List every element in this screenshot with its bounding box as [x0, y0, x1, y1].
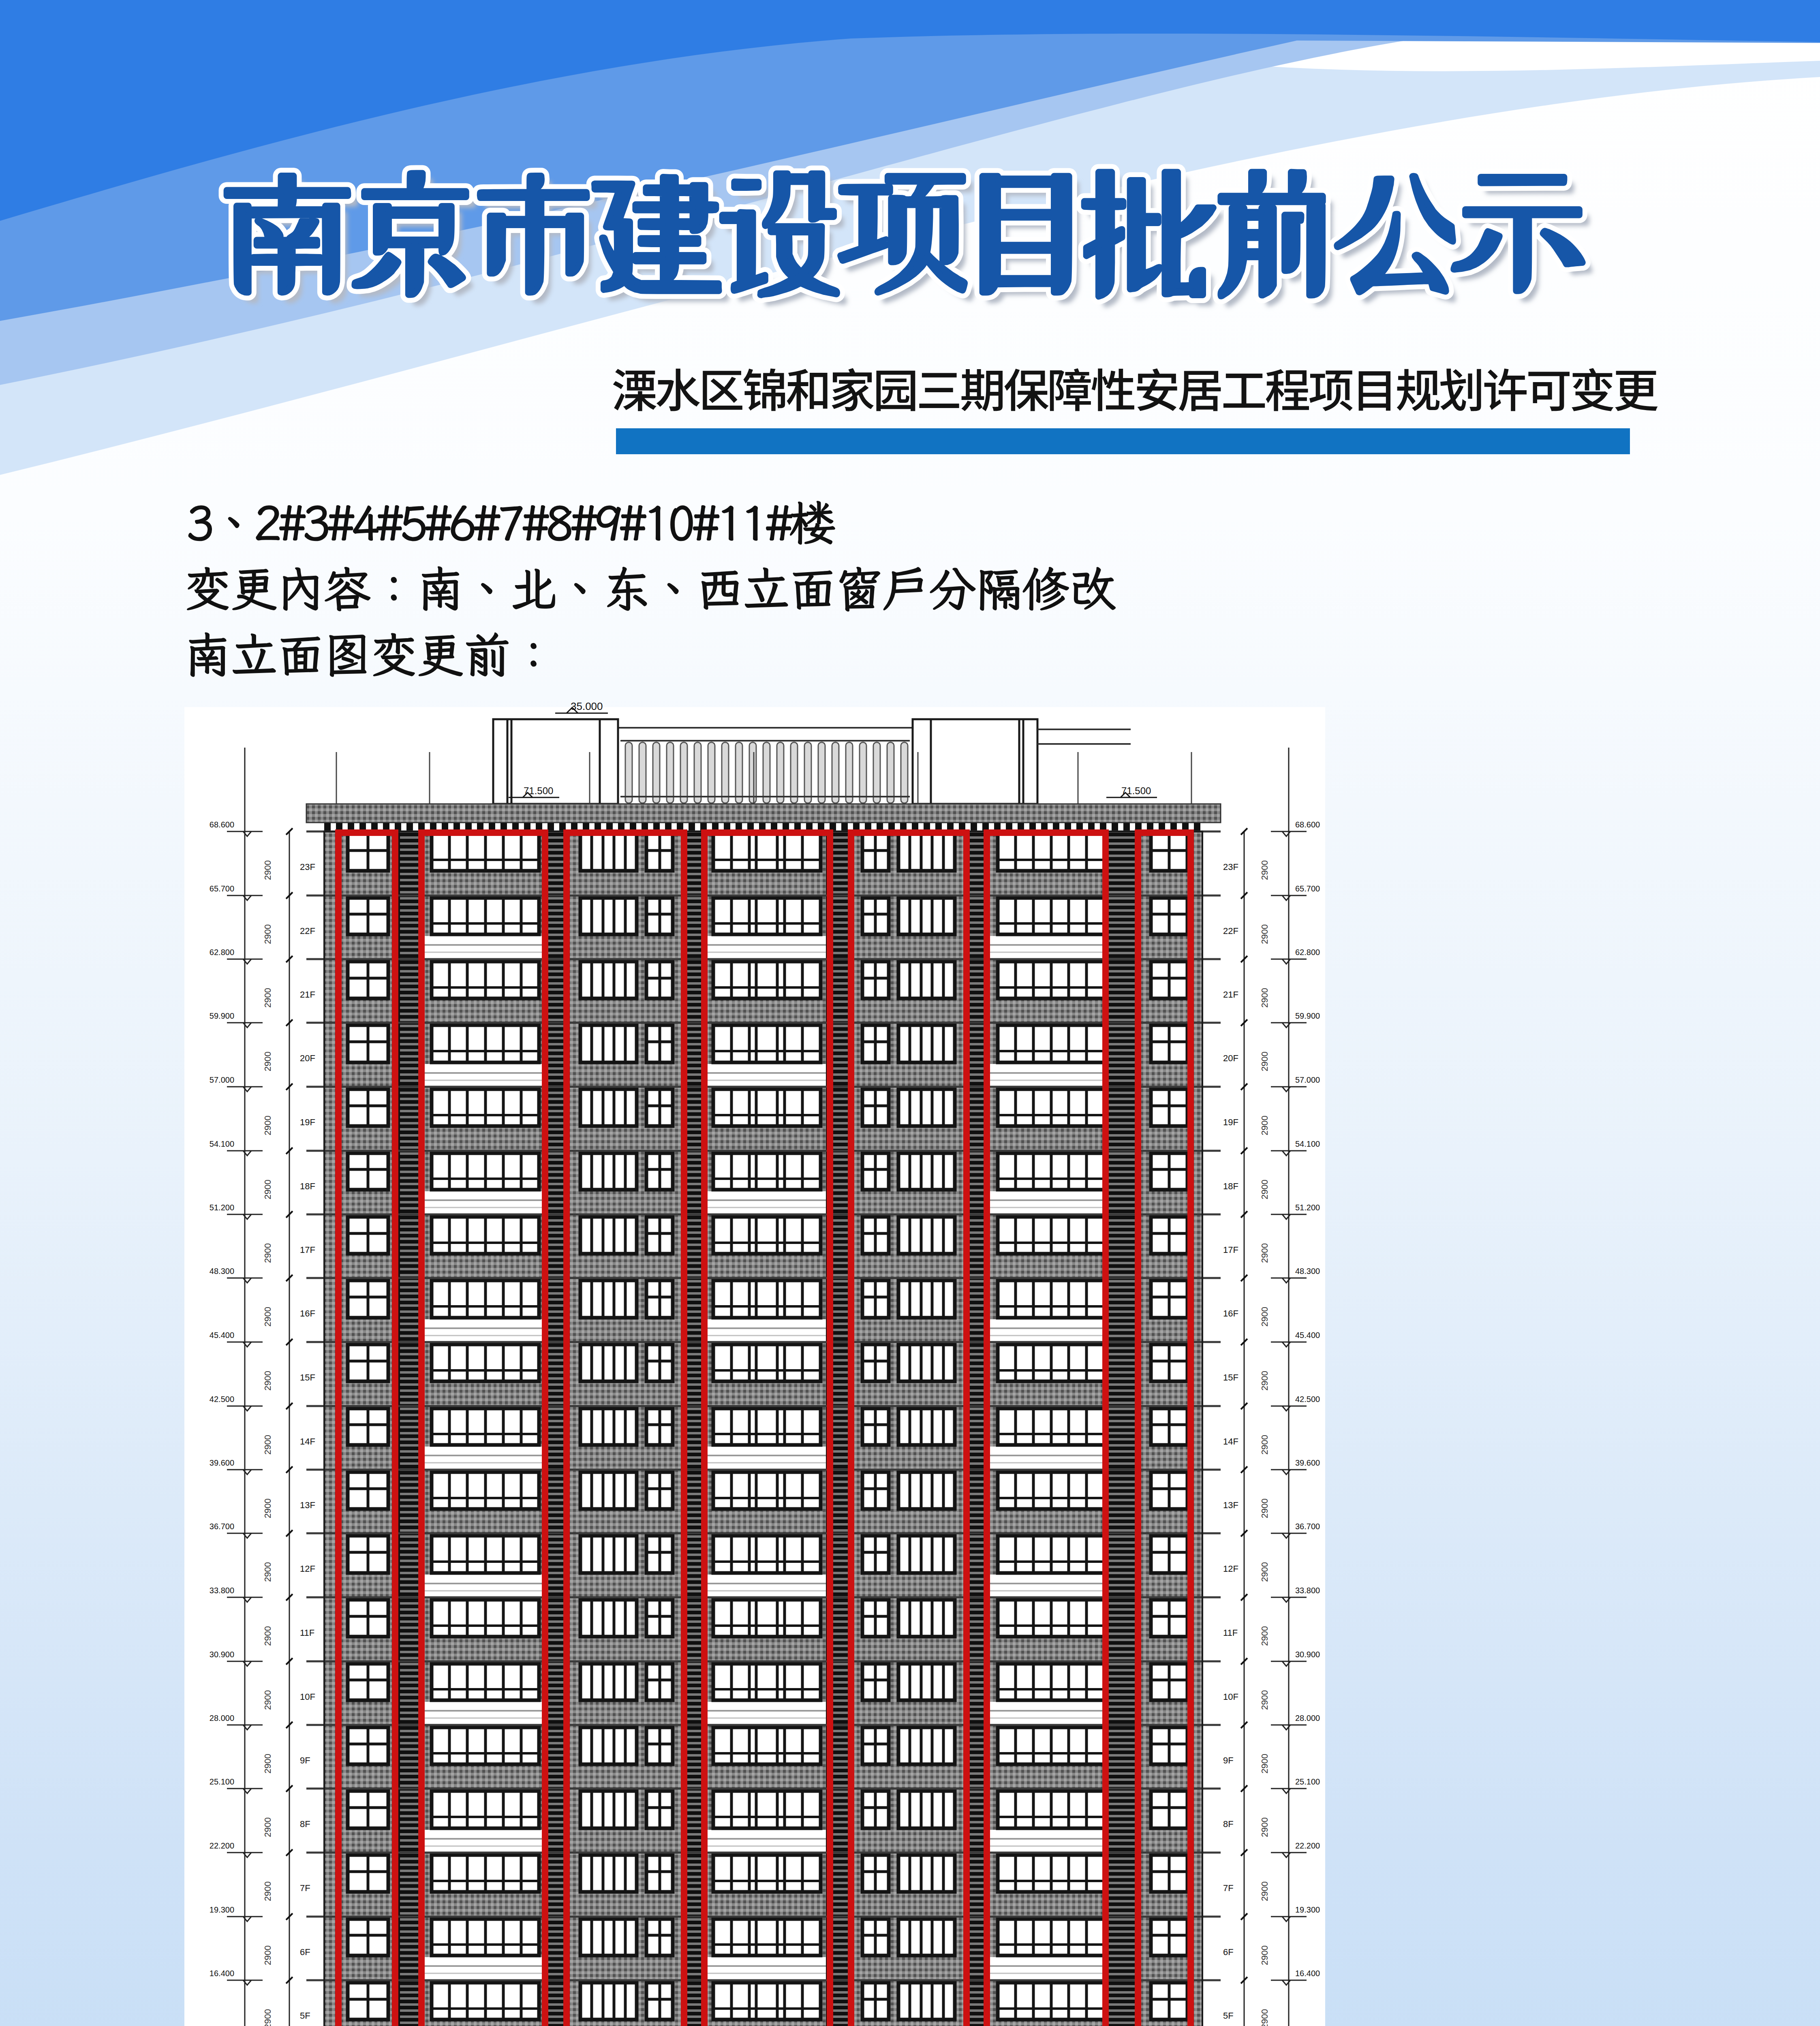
svg-text:19.300: 19.300	[210, 1905, 234, 1914]
svg-text:10F: 10F	[1223, 1692, 1238, 1702]
svg-text:10F: 10F	[300, 1692, 315, 1702]
svg-text:2900: 2900	[1260, 1498, 1270, 1518]
svg-text:51.200: 51.200	[210, 1203, 234, 1212]
svg-text:2900: 2900	[1260, 1307, 1270, 1327]
svg-text:14F: 14F	[300, 1436, 315, 1447]
svg-text:2900: 2900	[263, 1945, 273, 1965]
svg-text:54.100: 54.100	[210, 1139, 234, 1148]
svg-text:2900: 2900	[1260, 2009, 1270, 2026]
svg-text:16.400: 16.400	[1295, 1969, 1320, 1978]
svg-text:54.100: 54.100	[1295, 1139, 1320, 1148]
svg-text:2900: 2900	[263, 1754, 273, 1774]
svg-text:2900: 2900	[1260, 1626, 1270, 1646]
svg-text:8F: 8F	[1223, 1819, 1234, 1829]
svg-text:2900: 2900	[263, 988, 273, 1008]
svg-text:48.300: 48.300	[210, 1267, 234, 1276]
svg-text:57.000: 57.000	[210, 1075, 234, 1084]
svg-text:71.500: 71.500	[1121, 785, 1151, 796]
svg-text:68.600: 68.600	[1295, 820, 1320, 829]
svg-text:18F: 18F	[300, 1181, 315, 1191]
svg-text:22.200: 22.200	[1295, 1841, 1320, 1850]
svg-text:2900: 2900	[263, 1371, 273, 1391]
svg-text:5F: 5F	[1223, 2011, 1234, 2021]
svg-text:8F: 8F	[300, 1819, 310, 1829]
svg-text:2900: 2900	[1260, 1051, 1270, 1071]
svg-text:25.100: 25.100	[210, 1777, 234, 1786]
svg-text:2900: 2900	[1260, 924, 1270, 944]
svg-text:12F: 12F	[300, 1564, 315, 1574]
svg-text:2900: 2900	[263, 1435, 273, 1455]
svg-text:9F: 9F	[1223, 1755, 1234, 1765]
svg-text:11F: 11F	[1223, 1628, 1238, 1638]
svg-text:28.000: 28.000	[1295, 1714, 1320, 1723]
svg-text:20F: 20F	[1223, 1053, 1238, 1063]
svg-text:65.700: 65.700	[1295, 884, 1320, 893]
svg-text:2900: 2900	[263, 1243, 273, 1263]
svg-text:57.000: 57.000	[1295, 1075, 1320, 1084]
svg-text:2900: 2900	[1260, 1435, 1270, 1455]
svg-text:2900: 2900	[263, 1817, 273, 1837]
svg-text:2900: 2900	[263, 924, 273, 944]
svg-text:13F: 13F	[300, 1500, 315, 1510]
svg-text:33.800: 33.800	[210, 1586, 234, 1595]
svg-text:16.400: 16.400	[210, 1969, 234, 1978]
svg-text:65.700: 65.700	[210, 884, 234, 893]
svg-text:7F: 7F	[1223, 1883, 1234, 1893]
svg-text:2900: 2900	[1260, 988, 1270, 1008]
svg-text:62.800: 62.800	[1295, 948, 1320, 957]
svg-text:19F: 19F	[300, 1117, 315, 1127]
svg-text:2900: 2900	[263, 1116, 273, 1135]
svg-text:36.700: 36.700	[210, 1522, 234, 1531]
svg-text:15F: 15F	[1223, 1372, 1238, 1383]
svg-text:23F: 23F	[300, 862, 315, 872]
svg-text:2900: 2900	[1260, 1881, 1270, 1901]
svg-text:2900: 2900	[263, 1881, 273, 1901]
svg-text:2900: 2900	[263, 2009, 273, 2026]
svg-text:2900: 2900	[263, 1690, 273, 1710]
svg-text:21F: 21F	[300, 989, 315, 1000]
svg-text:6F: 6F	[300, 1947, 310, 1957]
svg-text:48.300: 48.300	[1295, 1267, 1320, 1276]
svg-text:2900: 2900	[263, 1498, 273, 1518]
svg-text:5F: 5F	[300, 2011, 310, 2021]
svg-text:35.000: 35.000	[571, 700, 603, 712]
svg-text:2900: 2900	[1260, 1243, 1270, 1263]
svg-text:68.600: 68.600	[210, 820, 234, 829]
svg-text:2900: 2900	[1260, 1817, 1270, 1837]
svg-text:2900: 2900	[263, 1562, 273, 1582]
svg-text:59.900: 59.900	[1295, 1011, 1320, 1020]
svg-text:2900: 2900	[263, 1307, 273, 1327]
svg-text:39.600: 39.600	[1295, 1458, 1320, 1467]
svg-text:42.500: 42.500	[210, 1395, 234, 1404]
svg-text:22F: 22F	[1223, 926, 1238, 936]
svg-text:39.600: 39.600	[210, 1458, 234, 1467]
svg-text:30.900: 30.900	[210, 1650, 234, 1659]
svg-text:9F: 9F	[300, 1755, 310, 1765]
svg-text:45.400: 45.400	[210, 1331, 234, 1340]
svg-text:2900: 2900	[1260, 1754, 1270, 1774]
svg-text:42.500: 42.500	[1295, 1395, 1320, 1404]
svg-text:71.500: 71.500	[524, 785, 553, 796]
svg-text:2900: 2900	[1260, 860, 1270, 880]
svg-text:11F: 11F	[300, 1628, 314, 1638]
svg-text:2900: 2900	[1260, 1945, 1270, 1965]
svg-text:2900: 2900	[1260, 1562, 1270, 1582]
svg-text:25.100: 25.100	[1295, 1777, 1320, 1786]
svg-text:62.800: 62.800	[210, 948, 234, 957]
svg-text:22.200: 22.200	[210, 1841, 234, 1850]
svg-text:2900: 2900	[1260, 1180, 1270, 1199]
svg-text:16F: 16F	[1223, 1308, 1238, 1319]
svg-text:12F: 12F	[1223, 1564, 1238, 1574]
svg-text:2900: 2900	[1260, 1690, 1270, 1710]
svg-text:2900: 2900	[263, 1051, 273, 1071]
svg-text:2900: 2900	[1260, 1116, 1270, 1135]
svg-text:19.300: 19.300	[1295, 1905, 1320, 1914]
svg-text:2900: 2900	[263, 860, 273, 880]
svg-text:6F: 6F	[1223, 1947, 1234, 1957]
svg-text:19F: 19F	[1223, 1117, 1238, 1127]
svg-text:21F: 21F	[1223, 989, 1238, 1000]
svg-text:2900: 2900	[263, 1626, 273, 1646]
svg-text:22F: 22F	[300, 926, 315, 936]
svg-text:36.700: 36.700	[1295, 1522, 1320, 1531]
svg-text:7F: 7F	[300, 1883, 310, 1893]
svg-text:15F: 15F	[300, 1372, 315, 1383]
svg-text:14F: 14F	[1223, 1436, 1238, 1447]
svg-text:28.000: 28.000	[210, 1714, 234, 1723]
svg-text:16F: 16F	[300, 1308, 315, 1319]
svg-text:2900: 2900	[1260, 1371, 1270, 1391]
svg-text:17F: 17F	[1223, 1245, 1238, 1255]
svg-text:18F: 18F	[1223, 1181, 1238, 1191]
svg-text:59.900: 59.900	[210, 1011, 234, 1020]
svg-text:30.900: 30.900	[1295, 1650, 1320, 1659]
svg-text:13F: 13F	[1223, 1500, 1238, 1510]
svg-text:51.200: 51.200	[1295, 1203, 1320, 1212]
svg-text:33.800: 33.800	[1295, 1586, 1320, 1595]
svg-text:17F: 17F	[300, 1245, 315, 1255]
svg-text:20F: 20F	[300, 1053, 315, 1063]
svg-text:2900: 2900	[263, 1180, 273, 1199]
svg-text:45.400: 45.400	[1295, 1331, 1320, 1340]
svg-text:23F: 23F	[1223, 862, 1238, 872]
